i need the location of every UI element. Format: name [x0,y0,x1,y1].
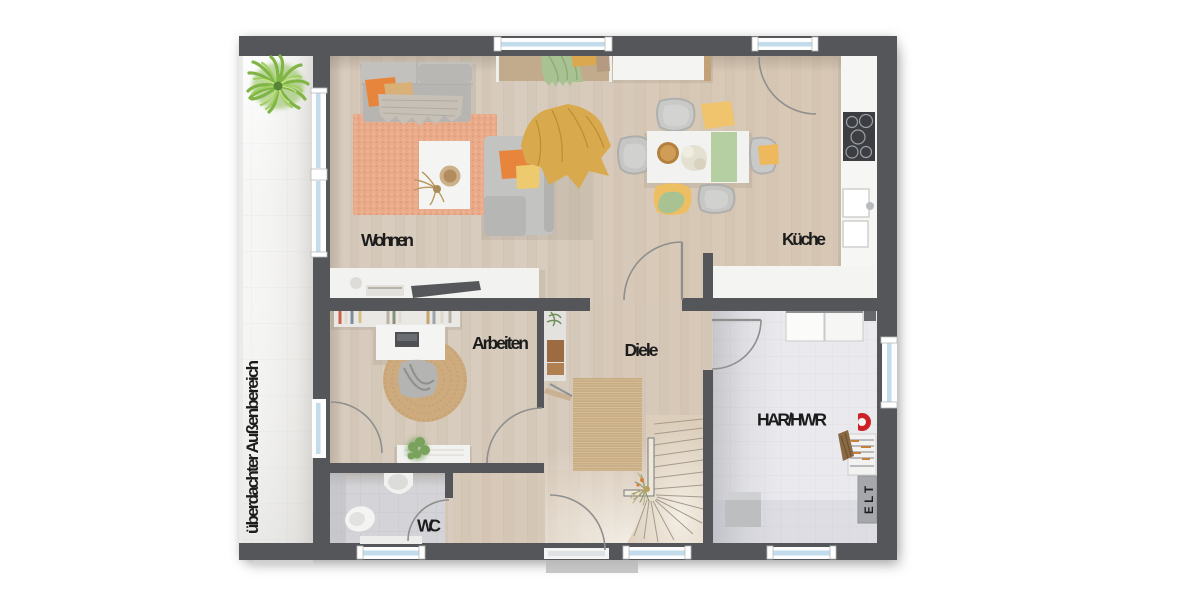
svg-text:Wohnen: Wohnen [361,230,414,250]
svg-text:Arbeiten: Arbeiten [472,333,529,353]
svg-text:überdachter Außenbereich: überdachter Außenbereich [243,360,262,534]
svg-text:ELT: ELT [864,486,876,514]
svg-text:WC: WC [417,516,441,536]
svg-text:HAR/HWR: HAR/HWR [757,410,827,430]
svg-text:Diele: Diele [625,340,659,360]
svg-text:Küche: Küche [782,229,826,249]
